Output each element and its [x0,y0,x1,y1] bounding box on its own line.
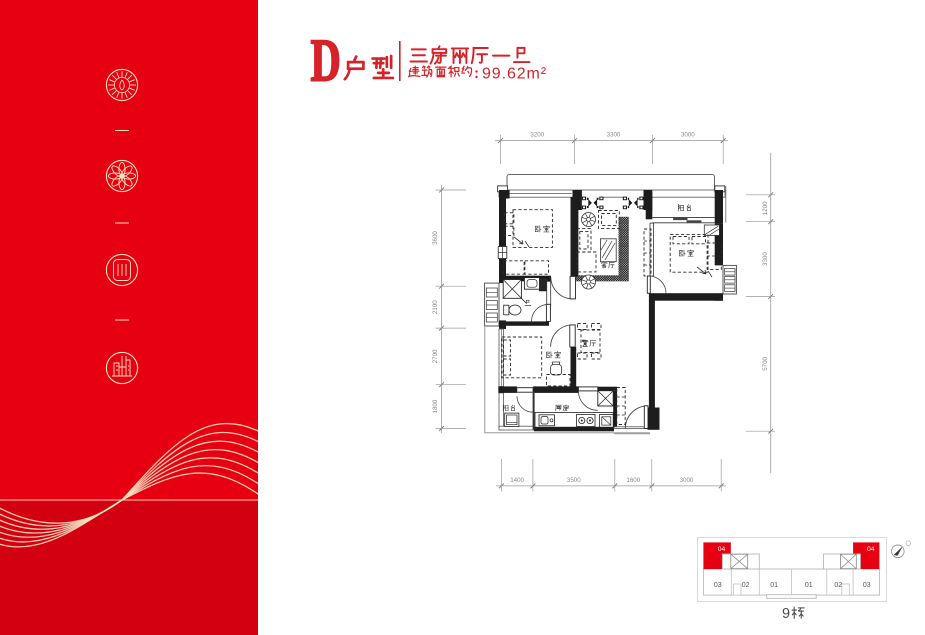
svg-text:02: 02 [742,582,750,589]
svg-text:3000: 3000 [680,477,694,484]
svg-text:5700: 5700 [762,356,769,370]
svg-text:3300: 3300 [607,132,621,139]
svg-text:2700: 2700 [432,349,439,363]
svg-text:01: 01 [770,582,778,589]
svg-text:3500: 3500 [567,477,581,484]
svg-text:01: 01 [805,582,813,589]
svg-text:3000: 3000 [681,132,695,139]
svg-text:1800: 1800 [432,399,439,413]
svg-text:D: D [311,28,341,94]
svg-text:03: 03 [863,582,871,589]
svg-text:03: 03 [714,582,722,589]
svg-text:02: 02 [834,582,842,589]
svg-text:1600: 1600 [626,477,640,484]
svg-text:2100: 2100 [432,300,439,314]
svg-text:3600: 3600 [432,231,439,245]
svg-text:1400: 1400 [510,477,524,484]
svg-text:9: 9 [782,606,790,622]
svg-text:3300: 3300 [762,252,769,266]
svg-text:04: 04 [867,546,875,553]
svg-text:3200: 3200 [530,132,544,139]
svg-text:1200: 1200 [762,201,769,215]
svg-text:04: 04 [718,546,726,553]
svg-text:99.62m²: 99.62m² [482,66,547,83]
